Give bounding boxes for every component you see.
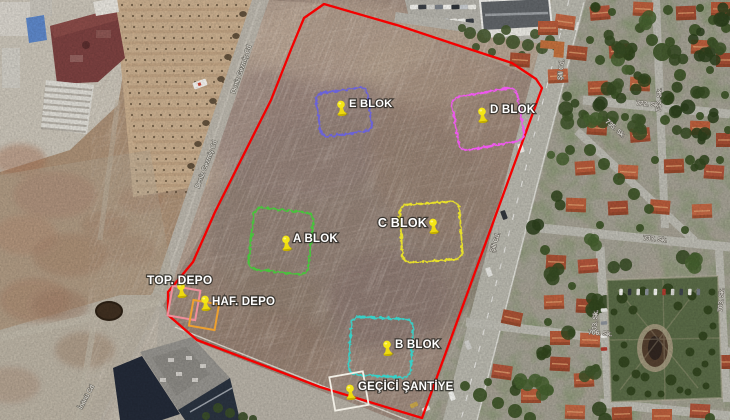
svg-text:TOP. DEPO: TOP. DEPO [147, 273, 212, 287]
svg-text:E BLOK: E BLOK [349, 98, 392, 110]
svg-text:HAF. DEPO: HAF. DEPO [212, 296, 275, 308]
svg-text:A BLOK: A BLOK [293, 233, 338, 245]
svg-text:GEÇİCİ ŞANTİYE: GEÇİCİ ŞANTİYE [358, 380, 454, 393]
svg-text:C BLOK: C BLOK [378, 216, 427, 230]
svg-text:B BLOK: B BLOK [395, 339, 441, 351]
svg-text:D BLOK: D BLOK [490, 104, 536, 116]
